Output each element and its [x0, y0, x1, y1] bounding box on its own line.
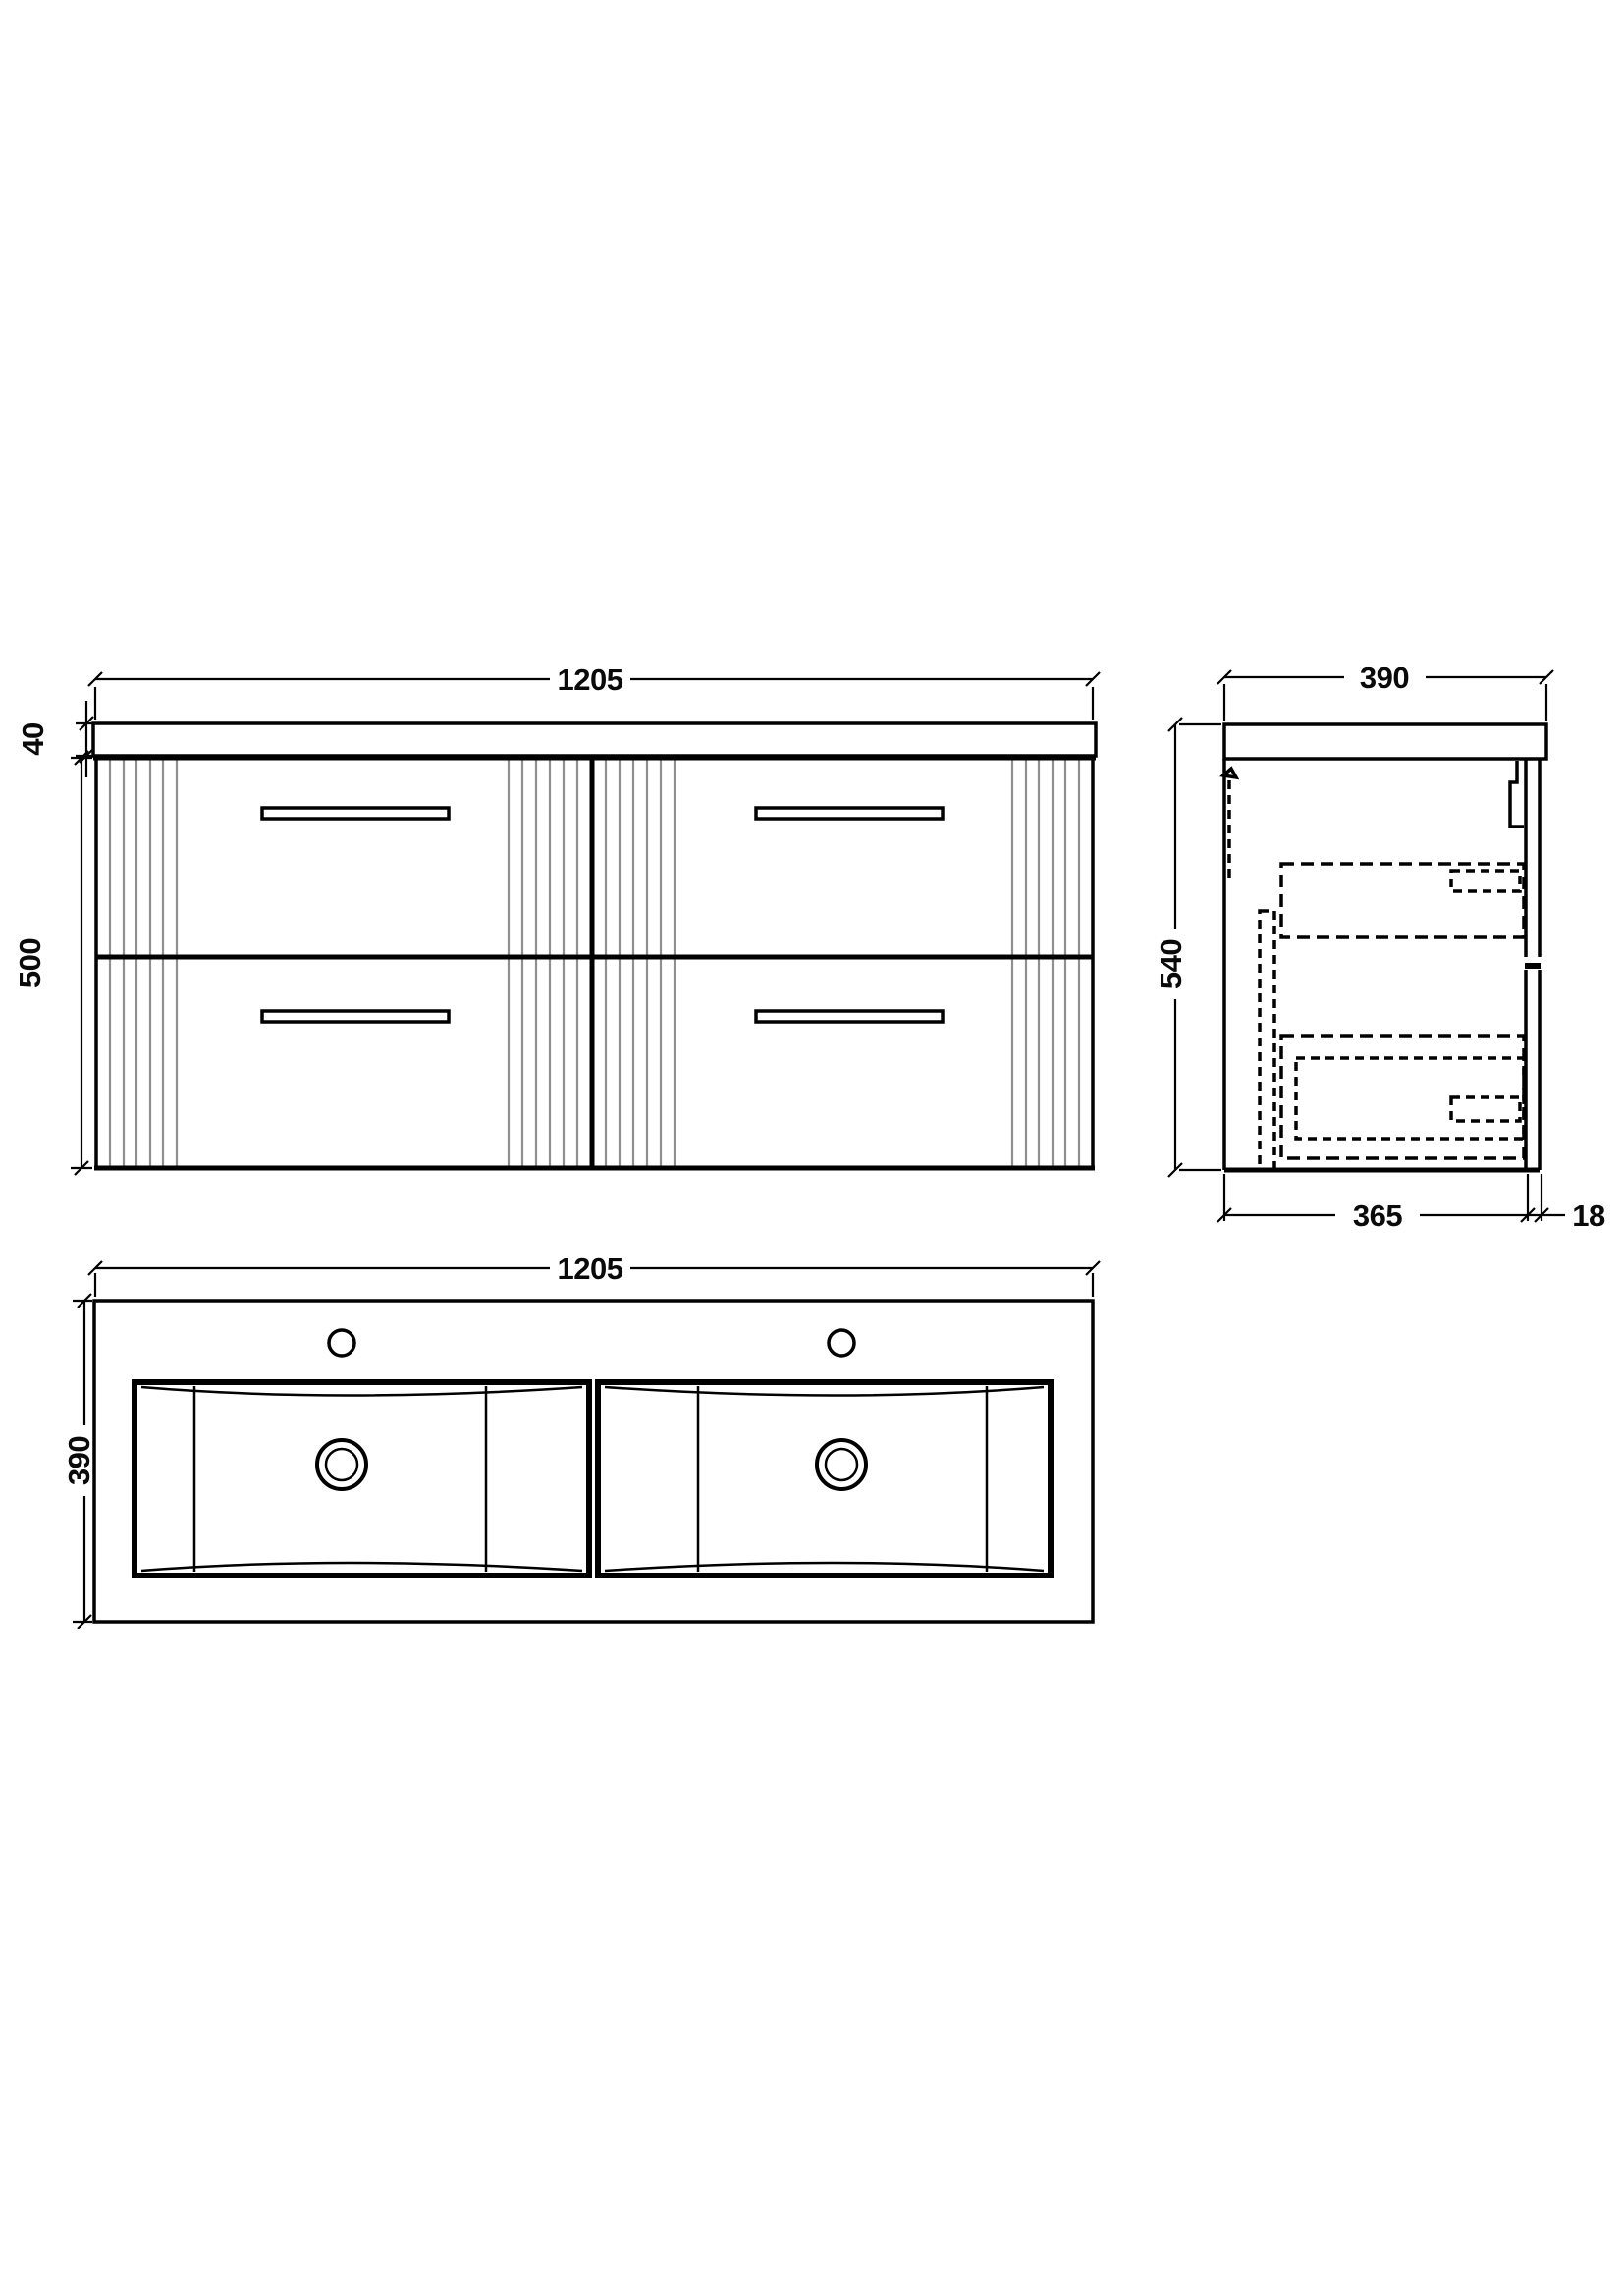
dim-front-height: 500: [13, 751, 92, 1175]
worktop-front: [93, 723, 1096, 756]
handle-top-left-drawer: [262, 808, 449, 819]
side-view: 390 540 365 18: [1154, 661, 1605, 1233]
handle-bottom-left-drawer: [262, 1011, 449, 1022]
dim-front-width-label: 1205: [558, 663, 623, 697]
dim-front-width: 1205: [88, 663, 1100, 720]
plan-view: 1205 390: [62, 1252, 1100, 1629]
fluted-band-left: [110, 760, 177, 1166]
dim-side-depth: 390: [1217, 661, 1553, 721]
fluted-band-center-right: [606, 760, 675, 1166]
fixing-notch: [1510, 761, 1524, 827]
drawer-front-gap-tick: [1525, 963, 1541, 969]
lower-drawer-handle-hidden: [1451, 1097, 1520, 1121]
dim-side-cabinet-depth: 365: [1217, 1174, 1535, 1233]
dim-side-cabinet-depth-label: 365: [1353, 1199, 1402, 1233]
dim-plan-width-label: 1205: [558, 1252, 623, 1286]
dim-side-panel-label: 18: [1572, 1199, 1605, 1233]
drawing-sheet: 1205 40 500: [0, 0, 1623, 2296]
dim-worktop-thickness-label: 40: [16, 722, 50, 755]
lower-drawer-box-inner-hidden: [1296, 1058, 1524, 1139]
handle-bottom-right-drawer: [756, 1011, 943, 1022]
dim-side-height: 540: [1154, 718, 1221, 1177]
dim-front-height-label: 500: [13, 938, 47, 988]
dim-side-height-label: 540: [1154, 939, 1188, 988]
dim-side-depth-label: 390: [1360, 661, 1409, 695]
dim-plan-width: 1205: [88, 1252, 1100, 1297]
fluted-band-center-left: [509, 760, 577, 1166]
upper-drawer-handle-hidden: [1451, 871, 1520, 891]
fluted-band-right: [1012, 760, 1079, 1166]
dim-side-panel: 18: [1528, 1174, 1605, 1233]
upper-drawer-box-hidden: [1281, 864, 1524, 937]
dim-plan-depth-label: 390: [62, 1436, 96, 1485]
worktop-side: [1224, 724, 1546, 759]
dim-plan-depth: 390: [62, 1294, 96, 1629]
handle-top-right-drawer: [756, 808, 943, 819]
front-view: 1205 40 500: [13, 663, 1100, 1175]
rear-runner-hidden: [1260, 911, 1274, 1170]
vanity-technical-drawing: 1205 40 500: [0, 0, 1623, 2296]
